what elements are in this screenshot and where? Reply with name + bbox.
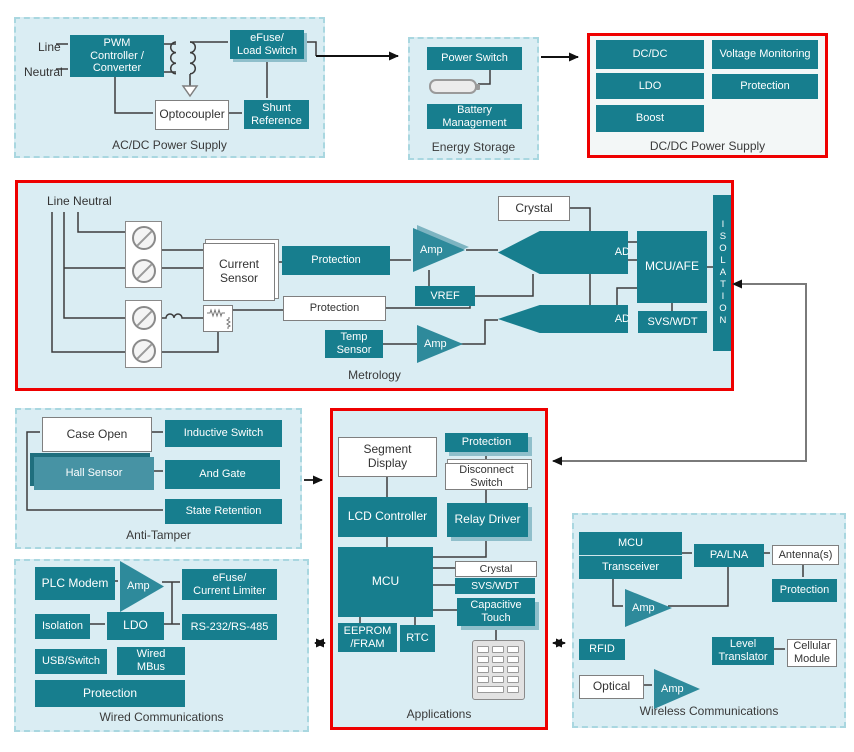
block-protection-dcdc[interactable]: Protection [712,74,818,99]
wired-section-title: Wired Communications [16,710,307,724]
section-energy-storage: Power Switch Battery Management Energy S… [408,37,539,160]
block-amp-wired[interactable]: Amp [120,561,164,612]
block-state-retention[interactable]: State Retention [165,499,282,524]
block-isolation-bar[interactable]: ISOLATION [713,195,731,351]
block-isolation-wired[interactable]: Isolation [35,614,90,639]
neutral-label: Neutral [24,65,63,79]
block-pa-lna[interactable]: PA/LNA [694,544,764,567]
block-dcdc[interactable]: DC/DC [596,40,704,69]
block-hall-sensor[interactable]: Hall Sensor [34,457,154,490]
shunt-resistor-icon [203,305,233,332]
block-efuse-load-switch[interactable]: eFuse/ Load Switch [230,30,304,59]
block-protection-metrology-bottom: Protection [283,296,386,321]
block-wired-mbus[interactable]: Wired MBus [117,647,185,675]
section-anti-tamper: Case Open Inductive Switch Hall Sensor A… [15,408,302,549]
section-dcdc-power-supply: DC/DC Voltage Monitoring LDO Protection … [587,33,828,158]
block-protection-wired[interactable]: Protection [35,680,185,707]
block-shunt-reference[interactable]: Shunt Reference [244,100,309,129]
metrology-line-neutral-label: Line Neutral [47,194,112,208]
screw-icon [132,306,156,330]
block-crystal-metrology: Crystal [498,196,570,221]
screw-icon [132,259,156,283]
energy-section-title: Energy Storage [410,140,537,154]
block-protection-metrology-top[interactable]: Protection [282,246,390,275]
section-acdc-power-supply: Line Neutral PWM Controller / Converter … [14,17,325,158]
block-optocoupler: Optocoupler [155,100,229,130]
acdc-section-title: AC/DC Power Supply [16,138,323,152]
block-pwm-controller[interactable]: PWM Controller / Converter [70,35,164,77]
block-svs-wdt-applications[interactable]: SVS/WDT [455,578,535,594]
block-mcu-transceiver[interactable]: MCU Transceiver [579,532,682,579]
wireless-mcu-label: MCU [579,532,682,556]
keypad-icon [472,640,525,700]
line-label: Line [38,40,61,54]
block-plc-modem[interactable]: PLC Modem [35,567,115,600]
block-amp-wireless-bottom[interactable]: Amp [654,669,700,709]
block-rs232-rs485[interactable]: RS-232/RS-485 [182,614,277,640]
block-inductive-switch[interactable]: Inductive Switch [165,420,282,447]
block-adc-bottom[interactable]: ADC [498,305,628,333]
block-amp-metrology-bottom[interactable]: Amp [417,325,463,363]
block-vref[interactable]: VREF [415,286,475,306]
block-usb-switch[interactable]: USB/Switch [35,649,107,674]
section-wired-communications: PLC Modem Amp eFuse/ Current Limiter Iso… [14,559,309,732]
screw-icon [132,339,156,363]
section-wireless-communications: MCU Transceiver PA/LNA Antenna(s) Protec… [572,513,846,728]
wireless-section-title: Wireless Communications [574,704,844,718]
anti-tamper-section-title: Anti-Tamper [17,528,300,542]
block-amp-wireless-top[interactable]: Amp [625,589,672,627]
block-disconnect-switch: Disconnect Switch [445,463,528,490]
terminal-block-icon [125,221,162,288]
block-protection-applications[interactable]: Protection [445,433,528,452]
dcdc-section-title: DC/DC Power Supply [590,139,825,153]
block-protection-wireless[interactable]: Protection [772,579,837,602]
battery-icon [429,79,477,94]
section-applications: Segment Display Protection Disconnect Sw… [330,408,548,730]
block-segment-display: Segment Display [338,437,437,477]
block-adc-top[interactable]: ADC [498,231,628,274]
block-boost[interactable]: Boost [596,105,704,132]
block-rfid[interactable]: RFID [579,639,625,660]
block-svs-wdt-metrology[interactable]: SVS/WDT [638,311,707,333]
block-relay-driver[interactable]: Relay Driver [447,503,528,537]
screw-icon [132,226,156,250]
block-ldo[interactable]: LDO [596,73,704,99]
wireless-transceiver-label: Transceiver [579,556,682,579]
block-eeprom-fram[interactable]: EEPROM /FRAM [338,623,397,652]
block-mcu-afe[interactable]: MCU/AFE [637,231,707,303]
block-temp-sensor[interactable]: Temp Sensor [325,330,383,358]
block-ldo-wired[interactable]: LDO [107,612,164,640]
resistor-glyph [206,308,232,331]
block-efuse-current-limiter[interactable]: eFuse/ Current Limiter [182,569,277,600]
block-capacitive-touch[interactable]: Capacitive Touch [457,598,535,626]
metrology-section-title: Metrology [18,368,731,382]
block-case-open: Case Open [42,417,152,452]
terminal-block-icon [125,300,162,368]
applications-section-title: Applications [333,707,545,721]
block-crystal-applications: Crystal [455,561,537,577]
block-cellular-module: Cellular Module [787,639,837,667]
block-and-gate[interactable]: And Gate [165,460,280,489]
block-level-translator[interactable]: Level Translator [712,637,774,665]
block-antennas: Antenna(s) [772,545,839,565]
block-current-sensor: Current Sensor [203,243,275,301]
block-lcd-controller[interactable]: LCD Controller [338,497,437,537]
block-rtc[interactable]: RTC [400,625,435,652]
block-battery-management[interactable]: Battery Management [427,104,522,129]
block-voltage-monitoring[interactable]: Voltage Monitoring [712,40,818,69]
block-mcu-applications[interactable]: MCU [338,547,433,617]
section-metrology: Line Neutral Current Sensor Protection P… [15,180,734,391]
block-power-switch[interactable]: Power Switch [427,47,522,70]
block-optical: Optical [579,675,644,699]
